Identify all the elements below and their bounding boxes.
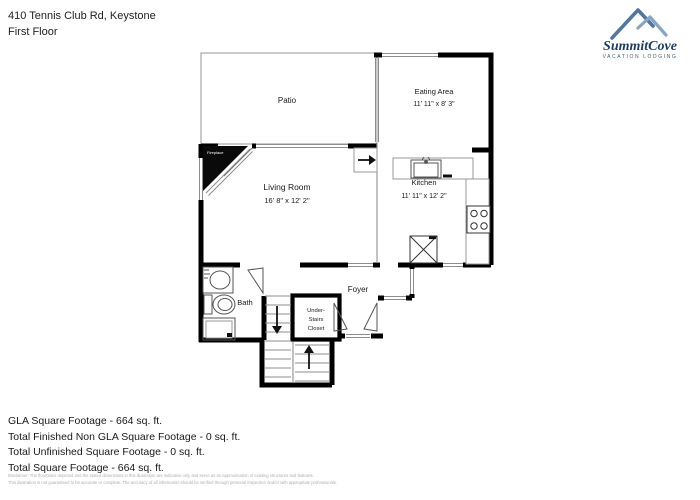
closet-label-line1: Under- [307, 308, 325, 314]
kitchen-dims: 11' 11" x 12' 2" [401, 193, 447, 200]
foyer-label: Foyer [348, 285, 369, 294]
eating-area-label: Eating Area [415, 87, 455, 96]
stairs-down-arrow [272, 306, 282, 334]
stairs-up-arrow [304, 345, 314, 369]
kitchen-door-arrow [354, 148, 377, 172]
closet-label-line3: Closet [308, 326, 325, 332]
patio-label: Patio [278, 96, 297, 105]
unfinished-footage-line: Total Unfinished Square Footage - 0 sq. … [8, 445, 240, 461]
disclaimer-line2: This illustration is not guaranteed to b… [8, 479, 628, 486]
shower-icon [203, 318, 235, 340]
disclaimer: Disclaimer: The floorplans depicted and … [8, 472, 628, 486]
living-room-dims: 16' 8" x 12' 2" [264, 196, 310, 205]
fireplace: Fireplace [203, 146, 253, 196]
room-labels: Patio Eating Area 11' 11" x 8' 3" Living… [237, 87, 455, 332]
bath-label: Bath [237, 298, 252, 307]
closet-label-line2: Stairs [309, 317, 324, 323]
bath-sink [203, 267, 233, 293]
non-gla-footage-line: Total Finished Non GLA Square Footage - … [8, 430, 240, 446]
stove-icon [467, 206, 490, 233]
entry-door-right-swing [364, 303, 377, 331]
fridge-icon [410, 236, 437, 263]
disclaimer-line1: Disclaimer: The floorplans depicted and … [8, 472, 628, 479]
toilet-icon [204, 295, 235, 314]
living-room-label: Living Room [263, 182, 310, 192]
gla-footage-line: GLA Square Footage - 664 sq. ft. [8, 414, 240, 430]
eating-area-dims: 11' 11" x 8' 3" [413, 101, 455, 108]
fireplace-label: Fireplace [207, 150, 224, 155]
bath-door-swing [248, 268, 263, 293]
kitchen-label: Kitchen [411, 178, 436, 187]
square-footage-summary: GLA Square Footage - 664 sq. ft. Total F… [8, 414, 240, 476]
floorplan-page: 410 Tennis Club Rd, Keystone First Floor… [0, 0, 700, 500]
